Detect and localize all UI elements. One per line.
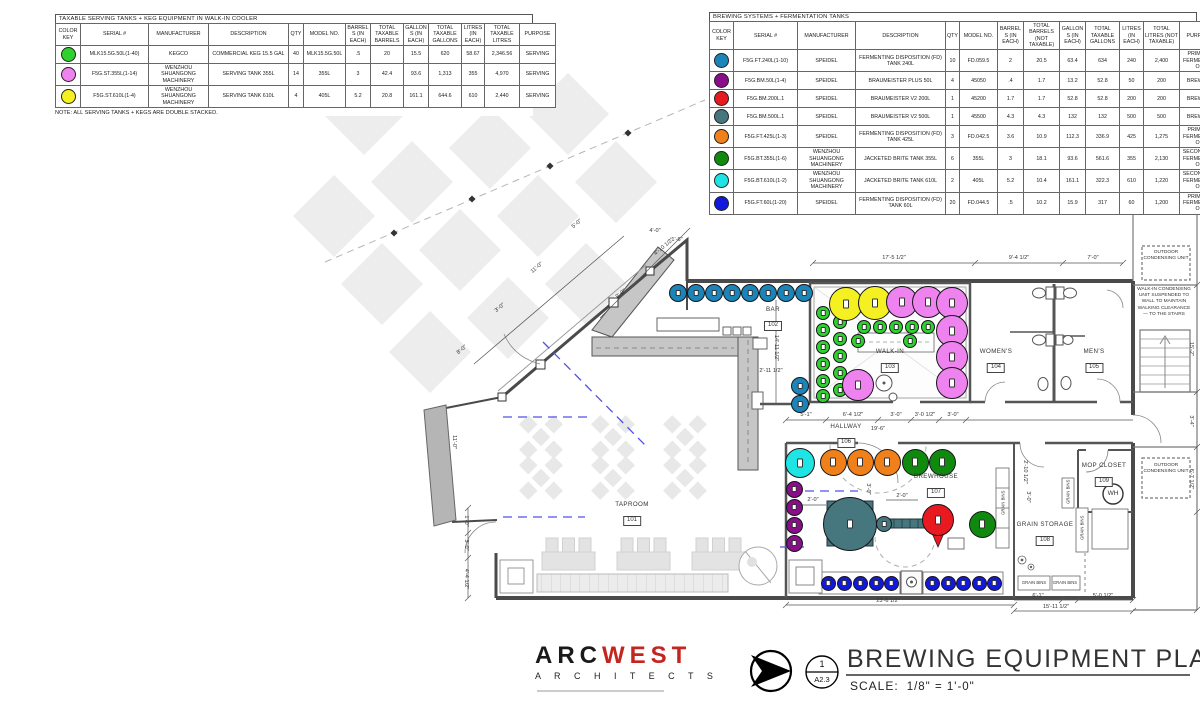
table-cell: SPEIDEL [798,50,856,72]
table-cell: 500 [1144,108,1180,126]
table-cell: SECONDARY FERMENTATION [1180,148,1200,170]
table-cell: 52.8 [1086,90,1120,108]
column-header: BARRELS (IN EACH) [346,24,371,46]
table-cell: 20.5 [1024,50,1060,72]
table-cell: 425 [1120,126,1144,148]
column-header: MANUFACTURER [149,24,209,46]
table-cell: 355L [960,148,998,170]
table-cell: 45050 [960,72,998,90]
column-header: TOTAL TAXABLE LITRES [485,24,520,46]
table-cell: FERMENTING DISPOSITION (FD) TANK 60L [856,192,946,214]
table-cell: 15.5 [404,46,429,64]
table-cell: 1 [946,108,960,126]
table-cell: F5G.ST.610L(1-4) [81,86,149,108]
table-cell: 4.3 [998,108,1024,126]
table-cell: SERVING [520,86,556,108]
table-cell: COMMERCIAL KEG 15.5 GAL [209,46,289,64]
table-cell: 1.7 [998,90,1024,108]
brewhouse-equipment [789,445,1003,594]
table-cell: 620 [429,46,462,64]
color-key-cell [56,86,81,108]
table-cell: FERMENTING DISPOSITION (FD) TANK 240L [856,50,946,72]
column-header: MODEL NO. [960,22,998,50]
color-key-swatch [61,47,76,62]
table-cell: 93.6 [404,64,429,86]
table-cell: 14 [289,64,304,86]
table-cell: 2 [998,50,1024,72]
table-cell: SERVING [520,46,556,64]
column-header: TOTAL TAXABLE GALLONS [1086,22,1120,50]
table-cell: 112.3 [1060,126,1086,148]
table-cell: 10 [946,50,960,72]
table-cell: BREWING [1180,90,1200,108]
color-key-swatch [714,53,729,68]
table-cell: SERVING TANK 355L [209,64,289,86]
equipment-table: COLOR KEYSERIAL #MANUFACTURERDESCRIPTION… [709,21,1200,215]
table-cell: 644.6 [429,86,462,108]
table-cell: JACKETED BRITE TANK 610L [856,170,946,192]
table-cell: 45500 [960,108,998,126]
table-cell: 610 [462,86,485,108]
table-cell: BREWING [1180,72,1200,90]
grain-storage-details [996,468,1128,592]
color-key-cell [56,64,81,86]
column-header: TOTAL LITRES (NOT TAXABLE) [1144,22,1180,50]
table-cell: 20 [946,192,960,214]
table-cell: FD.059.5 [960,50,998,72]
table-row: F5G.FT.60L(1-20)SPEIDELFERMENTING DISPOS… [710,192,1200,214]
table-cell: SPEIDEL [798,192,856,214]
table-title: BREWING SYSTEMS + FERMENTATION TANKS [709,12,1197,21]
table-cell: SPEIDEL [798,90,856,108]
table-cell: .4 [998,72,1024,90]
color-key-cell [710,126,734,148]
table-cell: SECONDARY FERMENTATION [1180,170,1200,192]
table-cell: 60 [1120,192,1144,214]
table-cell: WENZHOU SHUANGONG MACHINERY [798,170,856,192]
column-header: GALLONS (IN EACH) [404,24,429,46]
table-cell: FD.044.5 [960,192,998,214]
table-cell: 1,220 [1144,170,1180,192]
table-cell: 5.2 [346,86,371,108]
table-cell: 561.6 [1086,148,1120,170]
table-cell: 5.2 [998,170,1024,192]
table-cell: 3 [998,148,1024,170]
table-serving-keg-equipment: TAXABLE SERVING TANKS + KEG EQUIPMENT IN… [55,14,533,116]
table-cell: 322.3 [1086,170,1120,192]
table-brewing-fermentation: BREWING SYSTEMS + FERMENTATION TANKSCOLO… [709,12,1197,215]
table-cell: 4 [289,86,304,108]
table-cell: 355L [304,64,346,86]
color-key-cell [710,50,734,72]
table-cell: 2,130 [1144,148,1180,170]
table-cell: 355 [462,64,485,86]
table-cell: 500 [1120,108,1144,126]
table-cell: 10.9 [1024,126,1060,148]
table-cell: WENZHOU SHUANGONG MACHINERY [149,86,209,108]
table-cell: 405L [304,86,346,108]
table-cell: 1,313 [429,64,462,86]
table-cell: 18.1 [1024,148,1060,170]
table-cell: 2,346.56 [485,46,520,64]
table-cell: F5G.ST.355L(1-14) [81,64,149,86]
table-cell: 1.7 [1024,90,1060,108]
table-cell: 1,200 [1144,192,1180,214]
color-key-cell [710,90,734,108]
table-cell: 200 [1120,90,1144,108]
table-cell: SPEIDEL [798,108,856,126]
table-cell: BRAUMEISTER V2 500L [856,108,946,126]
column-header: SERIAL # [734,22,798,50]
table-cell: F5G.FT.425L(1-3) [734,126,798,148]
table-cell: F5G.BT.610L(1-2) [734,170,798,192]
table-cell: PRIMARY FERMENTATION [1180,50,1200,72]
table-cell: 3 [946,126,960,148]
table-cell: 317 [1086,192,1120,214]
column-header: MODEL NO. [304,24,346,46]
column-header: COLOR KEY [56,24,81,46]
table-cell: SPEIDEL [798,126,856,148]
table-cell: 634 [1086,50,1120,72]
table-cell: 3.6 [998,126,1024,148]
table-cell: FERMENTING DISPOSITION (FD) TANK 425L [856,126,946,148]
column-header: DESCRIPTION [209,24,289,46]
table-cell: 52.8 [1060,90,1086,108]
color-key-cell [710,148,734,170]
color-key-swatch [714,173,729,188]
table-cell: MLK15.5G.50L [304,46,346,64]
table-cell: F5G.BM.50L(1-4) [734,72,798,90]
table-cell: F5G.BM.500L.1 [734,108,798,126]
table-cell: 20 [371,46,404,64]
column-header: MANUFACTURER [798,22,856,50]
table-row: F5G.BM.500L.1SPEIDELBRAUMEISTER V2 500L1… [710,108,1200,126]
table-cell: 1,275 [1144,126,1180,148]
round-table [739,547,777,585]
column-header: QTY [289,24,304,46]
table-row: F5G.FT.240L(1-10)SPEIDELFERMENTING DISPO… [710,50,1200,72]
column-header: BARRELS (IN EACH) [998,22,1024,50]
table-cell: 20.8 [371,86,404,108]
color-key-swatch [61,67,76,82]
table-cell: BRAUMEISTER PLUS 50L [856,72,946,90]
column-header: PURPOSE [520,24,556,46]
table-cell: 200 [1144,72,1180,90]
table-cell: 15.9 [1060,192,1086,214]
table-cell: 10.4 [1024,170,1060,192]
west-wall [424,405,456,526]
color-key-cell [710,192,734,214]
table-cell: 200 [1144,90,1180,108]
column-header: DESCRIPTION [856,22,946,50]
table-row: F5G.BT.355L(1-6)WENZHOU SHUANGONG MACHIN… [710,148,1200,170]
column-header: GALLONS (IN EACH) [1060,22,1086,50]
table-row: MLK15.5G.50L(1-40)KEGCOCOMMERCIAL KEG 15… [56,46,556,64]
table-cell: JACKETED BRITE TANK 355L [856,148,946,170]
table-cell: WENZHOU SHUANGONG MACHINERY [798,148,856,170]
table-cell: SPEIDEL [798,72,856,90]
table-cell: 40 [289,46,304,64]
table-cell: BREWING [1180,108,1200,126]
table-cell: MLK15.5G.50L(1-40) [81,46,149,64]
table-cell: 63.4 [1060,50,1086,72]
walk-in-cooler [810,283,970,402]
color-key-cell [710,108,734,126]
table-cell: 161.1 [404,86,429,108]
column-header: LITRES (IN EACH) [462,24,485,46]
table-cell: SERVING TANK 610L [209,86,289,108]
table-row: F5G.BM.50L(1-4)SPEIDELBRAUMEISTER PLUS 5… [710,72,1200,90]
table-cell: 355 [1120,148,1144,170]
table-cell: PRIMARY FERMENTATION [1180,192,1200,214]
table-row: F5G.BM.200L.1SPEIDELBRAUMEISTER V2 200L1… [710,90,1200,108]
table-note: NOTE: ALL SERVING TANKS + KEGS ARE DOUBL… [55,110,533,116]
color-key-cell [56,46,81,64]
table-cell: 2,400 [1144,50,1180,72]
table-cell: SERVING [520,64,556,86]
taproom-tables [506,402,719,512]
table-cell: F5G.FT.60L(1-20) [734,192,798,214]
table-cell: 132 [1060,108,1086,126]
table-cell: .5 [998,192,1024,214]
stairs [1140,330,1190,392]
column-header: TOTAL BARRELS (NOT TAXABLE) [1024,22,1060,50]
table-cell: F5G.FT.240L(1-10) [734,50,798,72]
column-header: COLOR KEY [710,22,734,50]
table-cell: 240 [1120,50,1144,72]
table-cell: .5 [346,46,371,64]
table-cell: 4 [946,72,960,90]
table-cell: PRIMARY FERMENTATION [1180,126,1200,148]
table-cell: F5G.BM.200L.1 [734,90,798,108]
color-key-cell [710,170,734,192]
detail-marker [806,656,838,688]
color-key-swatch [714,129,729,144]
table-cell: BRAUMEISTER V2 200L [856,90,946,108]
host-stand [500,560,533,593]
table-cell: F5G.BT.355L(1-6) [734,148,798,170]
table-cell: KEGCO [149,46,209,64]
table-cell: 50 [1120,72,1144,90]
table-cell: 2,440 [485,86,520,108]
column-header: TOTAL TAXABLE GALLONS [429,24,462,46]
table-cell: 93.6 [1060,148,1086,170]
table-cell: 1 [946,90,960,108]
equipment-table: COLOR KEYSERIAL #MANUFACTURERDESCRIPTION… [55,23,556,108]
booths [542,538,745,570]
north-arrow-icon [751,651,791,691]
column-header: QTY [946,22,960,50]
outdoor-strip [1133,199,1197,610]
table-cell: 1.7 [1024,72,1060,90]
table-cell: 336.9 [1086,126,1120,148]
table-cell: 161.1 [1060,170,1086,192]
color-key-swatch [714,91,729,106]
color-key-swatch [714,151,729,166]
table-cell: WENZHOU SHUANGONG MACHINERY [149,64,209,86]
table-cell: FD.042.5 [960,126,998,148]
table-cell: 6 [946,148,960,170]
color-key-swatch [714,73,729,88]
column-header: PURPOSE [1180,22,1200,50]
drawing-sheet: TAXABLE SERVING TANKS + KEG EQUIPMENT IN… [0,0,1200,705]
bench-seating [537,574,728,592]
table-cell: 58.67 [462,46,485,64]
table-title: TAXABLE SERVING TANKS + KEG EQUIPMENT IN… [55,14,533,23]
table-cell: 4,970 [485,64,520,86]
color-key-swatch [61,89,76,104]
column-header: TOTAL TAXABLE BARRELS [371,24,404,46]
table-row: F5G.BT.610L(1-2)WENZHOU SHUANGONG MACHIN… [710,170,1200,192]
color-key-swatch [714,109,729,124]
table-cell: 45200 [960,90,998,108]
table-row: F5G.FT.425L(1-3)SPEIDELFERMENTING DISPOS… [710,126,1200,148]
table-cell: 4.3 [1024,108,1060,126]
table-cell: 405L [960,170,998,192]
table-row: F5G.ST.355L(1-14)WENZHOU SHUANGONG MACHI… [56,64,556,86]
column-header: SERIAL # [81,24,149,46]
table-cell: 52.8 [1086,72,1120,90]
table-cell: 10.2 [1024,192,1060,214]
table-cell: 2 [946,170,960,192]
table-cell: 132 [1086,108,1120,126]
table-cell: 13.2 [1060,72,1086,90]
color-key-swatch [714,196,729,211]
table-row: F5G.ST.610L(1-4)WENZHOU SHUANGONG MACHIN… [56,86,556,108]
table-cell: 42.4 [371,64,404,86]
column-header: LITRES (IN EACH) [1120,22,1144,50]
color-key-cell [710,72,734,90]
table-cell: 3 [346,64,371,86]
table-cell: 610 [1120,170,1144,192]
